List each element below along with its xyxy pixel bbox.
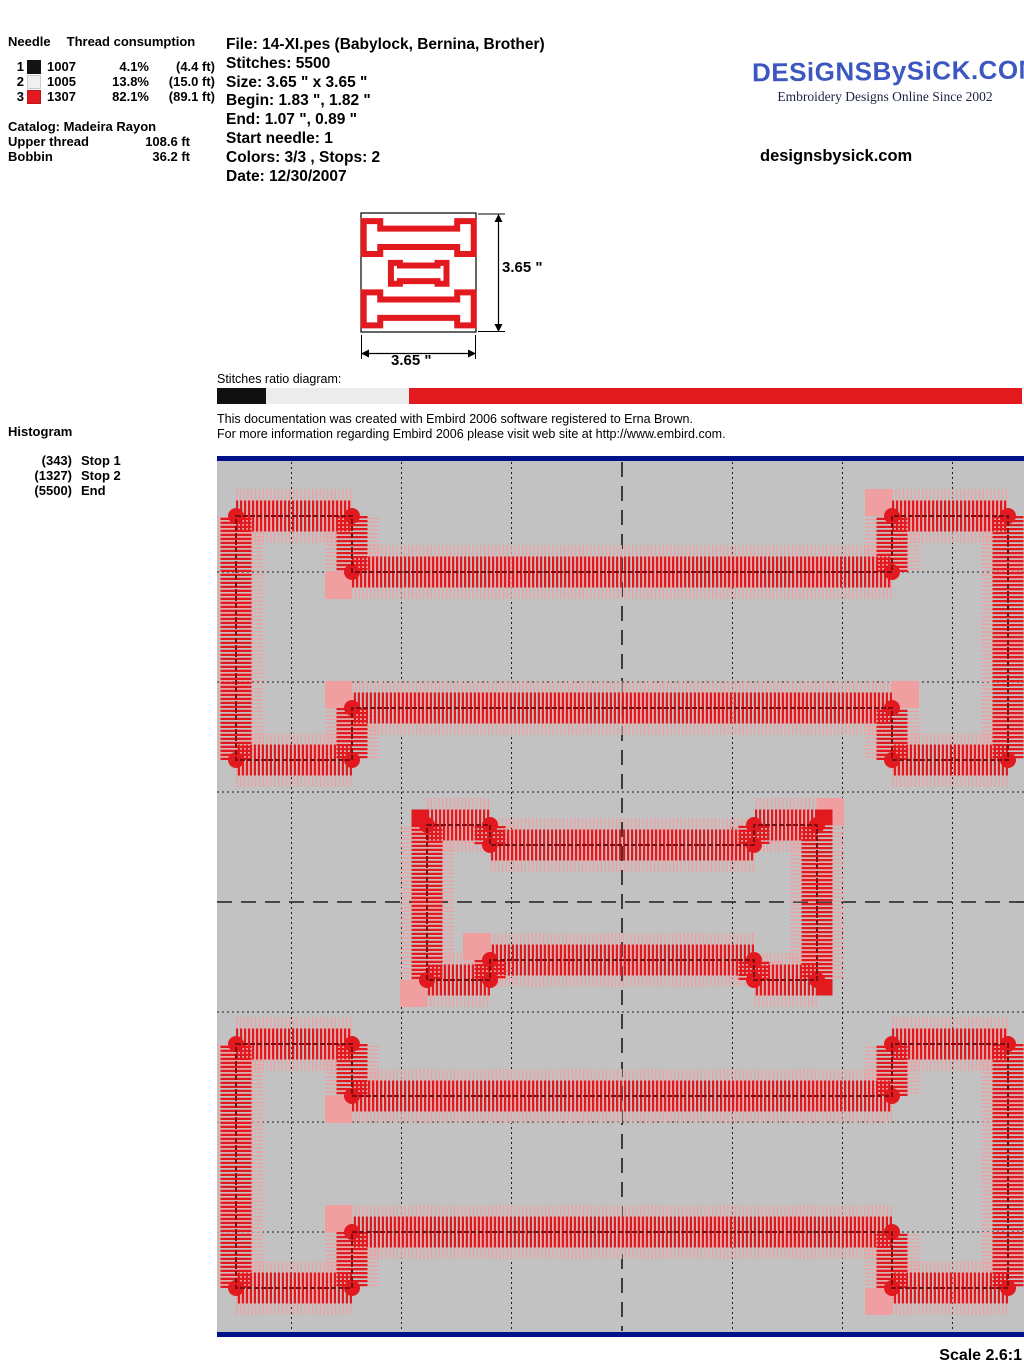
thread-color-chip bbox=[27, 90, 41, 104]
upper-thread-label: Upper thread bbox=[8, 134, 89, 149]
scale-label: Scale 2.6:1 bbox=[925, 1347, 1022, 1365]
histogram-label: Stop 2 bbox=[81, 468, 121, 483]
embird-note-line2: For more information regarding Embird 20… bbox=[217, 427, 726, 442]
histogram-label: Stop 1 bbox=[81, 453, 121, 468]
thread-rows: 110074.1%(4.4 ft)2100513.8%(15.0 ft)3130… bbox=[8, 59, 218, 104]
thread-percent: 82.1% bbox=[93, 89, 149, 104]
thread-code: 1005 bbox=[47, 74, 93, 89]
thread-length: (89.1 ft) bbox=[149, 89, 215, 104]
file-info-line: Size: 3.65 " x 3.65 " bbox=[226, 74, 646, 93]
bobbin-row: Bobbin 36.2 ft bbox=[8, 149, 190, 164]
thread-consumption-panel: NeedleThread consumption 110074.1%(4.4 f… bbox=[8, 34, 218, 164]
upper-thread-row: Upper thread 108.6 ft bbox=[8, 134, 190, 149]
stitches-ratio-label: Stitches ratio diagram: bbox=[217, 372, 341, 386]
thread-percent: 13.8% bbox=[93, 74, 149, 89]
ratio-segment bbox=[409, 388, 1022, 404]
thread-table-header: NeedleThread consumption bbox=[8, 34, 218, 49]
histogram-count: (5500) bbox=[8, 483, 72, 498]
height-dimension-label: 3.65 " bbox=[502, 259, 542, 276]
design-thumbnail bbox=[340, 206, 570, 386]
file-info-line: Colors: 3/3 , Stops: 2 bbox=[226, 149, 646, 168]
file-info-line: End: 1.07 ", 0.89 " bbox=[226, 111, 646, 130]
thread-needle-number: 1 bbox=[8, 59, 24, 74]
file-info-line: Date: 12/30/2007 bbox=[226, 168, 646, 187]
canvas-border-top bbox=[217, 456, 1024, 461]
thread-length: (4.4 ft) bbox=[149, 59, 215, 74]
logo-block: DESiGNSBySiCK.COM Embroidery Designs Onl… bbox=[752, 56, 1018, 105]
thread-needle-number: 3 bbox=[8, 89, 24, 104]
width-dimension-label: 3.65 " bbox=[391, 352, 431, 369]
file-info-line: Start needle: 1 bbox=[226, 130, 646, 149]
histogram-count: (1327) bbox=[8, 468, 72, 483]
thread-row: 3130782.1%(89.1 ft) bbox=[8, 89, 218, 104]
thread-color-chip bbox=[27, 60, 41, 74]
thread-percent: 4.1% bbox=[93, 59, 149, 74]
thread-row: 2100513.8%(15.0 ft) bbox=[8, 74, 218, 89]
histogram-stops: (343)Stop 1(1327)Stop 2(5500)End bbox=[8, 453, 121, 498]
histogram-row: (343)Stop 1 bbox=[8, 453, 121, 468]
stitch-preview-canvas bbox=[217, 456, 1024, 1337]
embird-documentation-page: { "thread_panel": { "header_needle": "Ne… bbox=[0, 0, 1024, 1370]
file-info-block: File: 14-XI.pes (Babylock, Bernina, Brot… bbox=[226, 36, 646, 186]
file-info-line: Stitches: 5500 bbox=[226, 55, 646, 74]
bobbin-label: Bobbin bbox=[8, 149, 53, 164]
embird-note: This documentation was created with Embi… bbox=[217, 412, 726, 441]
histogram-title: Histogram bbox=[8, 424, 72, 439]
embird-note-line1: This documentation was created with Embi… bbox=[217, 412, 726, 427]
needle-column-header: Needle bbox=[8, 34, 51, 49]
ratio-segment bbox=[266, 388, 409, 404]
histogram-row: (5500)End bbox=[8, 483, 121, 498]
file-info-line: File: 14-XI.pes (Babylock, Bernina, Brot… bbox=[226, 36, 646, 55]
thread-code: 1007 bbox=[47, 59, 93, 74]
logo-tagline: Embroidery Designs Online Since 2002 bbox=[752, 89, 1018, 105]
thread-length: (15.0 ft) bbox=[149, 74, 215, 89]
file-info-line: Begin: 1.83 ", 1.82 " bbox=[226, 92, 646, 111]
thread-color-chip bbox=[27, 75, 41, 89]
upper-thread-value: 108.6 ft bbox=[145, 134, 190, 149]
histogram-row: (1327)Stop 2 bbox=[8, 468, 121, 483]
bobbin-value: 36.2 ft bbox=[152, 149, 190, 164]
consumption-column-header: Thread consumption bbox=[67, 34, 196, 49]
site-url-text: designsbysick.com bbox=[760, 147, 912, 166]
thread-row: 110074.1%(4.4 ft) bbox=[8, 59, 218, 74]
histogram-count: (343) bbox=[8, 453, 72, 468]
catalog-line: Catalog: Madeira Rayon bbox=[8, 119, 218, 134]
histogram-label: End bbox=[81, 483, 106, 498]
thread-code: 1307 bbox=[47, 89, 93, 104]
designsbysick-logo: DESiGNSBySiCK.COM bbox=[752, 55, 1018, 89]
canvas-border-bottom bbox=[217, 1332, 1024, 1337]
ratio-segment bbox=[217, 388, 266, 404]
thread-needle-number: 2 bbox=[8, 74, 24, 89]
stitches-ratio-bar bbox=[217, 388, 1022, 404]
